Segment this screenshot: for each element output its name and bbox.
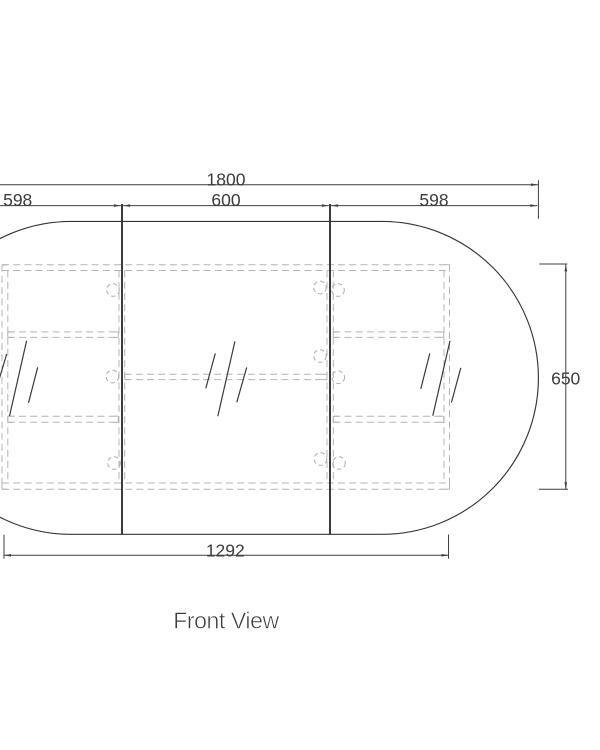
svg-text:600: 600 bbox=[211, 190, 240, 210]
svg-text:1292: 1292 bbox=[206, 541, 245, 561]
svg-text:598: 598 bbox=[419, 190, 448, 210]
svg-text:598: 598 bbox=[3, 190, 32, 210]
svg-text:650: 650 bbox=[551, 368, 580, 388]
svg-text:1800: 1800 bbox=[207, 170, 246, 190]
svg-text:Front View: Front View bbox=[173, 608, 279, 634]
